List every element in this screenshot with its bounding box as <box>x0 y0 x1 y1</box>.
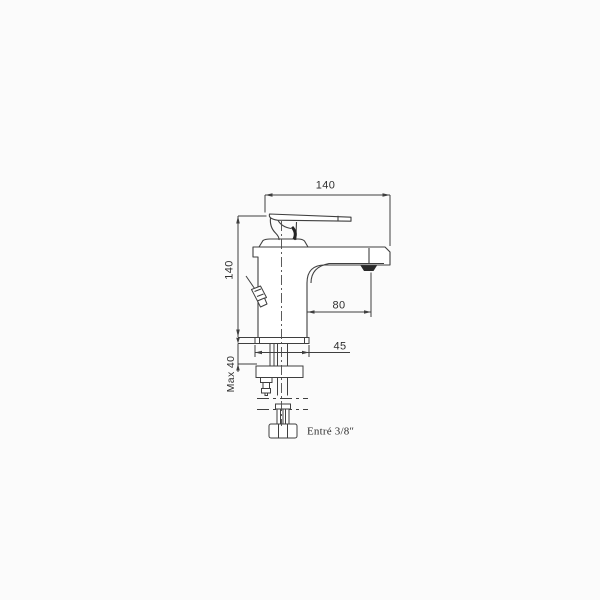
mounting-nut <box>256 366 303 378</box>
dim-label-base-width: 45 <box>333 342 346 353</box>
lever-blade <box>269 214 351 221</box>
lever-slot <box>292 227 295 240</box>
base-plate <box>255 338 309 344</box>
lever-mount-left <box>270 218 279 240</box>
dim-label-left-height: 140 <box>225 260 236 280</box>
dim-label-top-width: 140 <box>316 181 336 192</box>
dim-label-spout-reach: 80 <box>332 301 345 312</box>
inlet-label: Entré 3/8″ <box>307 427 354 438</box>
hose-nut <box>269 424 297 438</box>
aerator <box>361 266 378 272</box>
technical-drawing-canvas: 140 140 Max 40 80 45 Entré 3/8″ <box>0 0 600 600</box>
dim-label-max-deck-thickness: Max 40 <box>226 356 237 393</box>
lever-mount-curve <box>278 220 291 228</box>
faucet-body <box>253 247 390 338</box>
faucet-drawing-svg <box>0 0 600 600</box>
quick-connector <box>261 378 273 396</box>
handle-dome <box>259 239 308 247</box>
